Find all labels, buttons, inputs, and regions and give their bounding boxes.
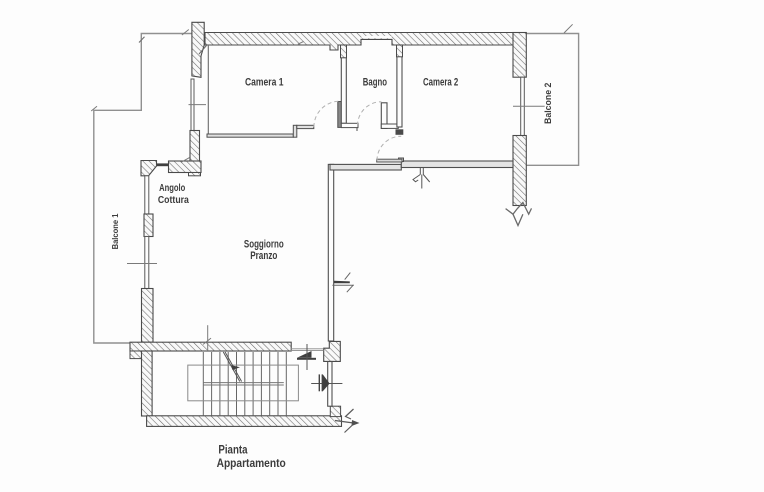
svg-text:Bagno: Bagno xyxy=(363,77,387,89)
svg-text:Balcone 2: Balcone 2 xyxy=(543,82,553,124)
svg-text:Angolo: Angolo xyxy=(159,183,185,194)
svg-text:Camera 2: Camera 2 xyxy=(423,76,458,88)
svg-text:Appartamento: Appartamento xyxy=(217,456,286,470)
svg-text:Pianta: Pianta xyxy=(218,443,247,457)
svg-text:Cottura: Cottura xyxy=(158,195,189,206)
svg-text:Soggiorno: Soggiorno xyxy=(244,238,284,250)
svg-text:Pranzo: Pranzo xyxy=(250,250,277,262)
svg-text:Balcone 1: Balcone 1 xyxy=(110,213,120,249)
svg-text:Camera 1: Camera 1 xyxy=(245,77,284,89)
